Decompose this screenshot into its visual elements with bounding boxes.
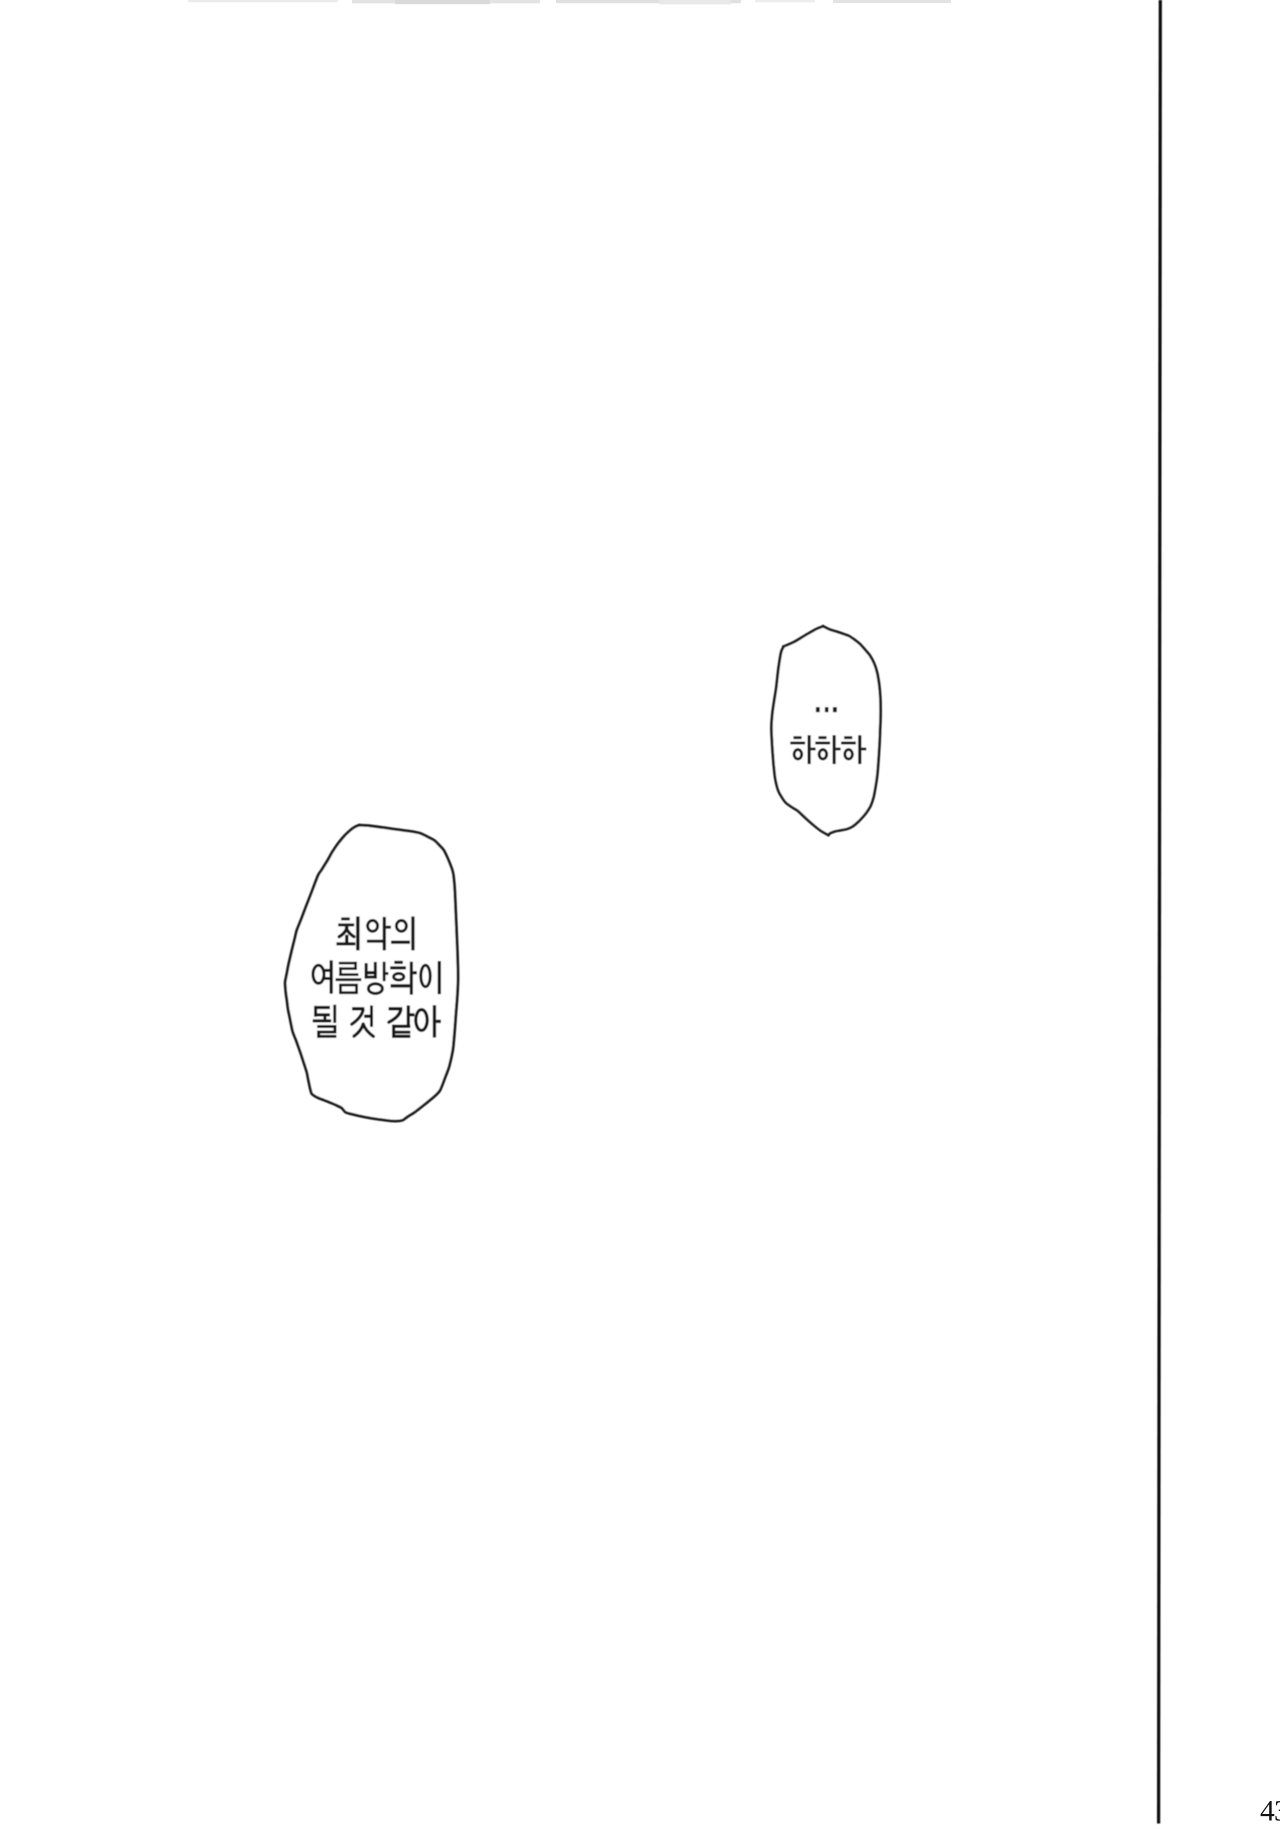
- svg-text:43: 43: [1260, 1796, 1280, 1825]
